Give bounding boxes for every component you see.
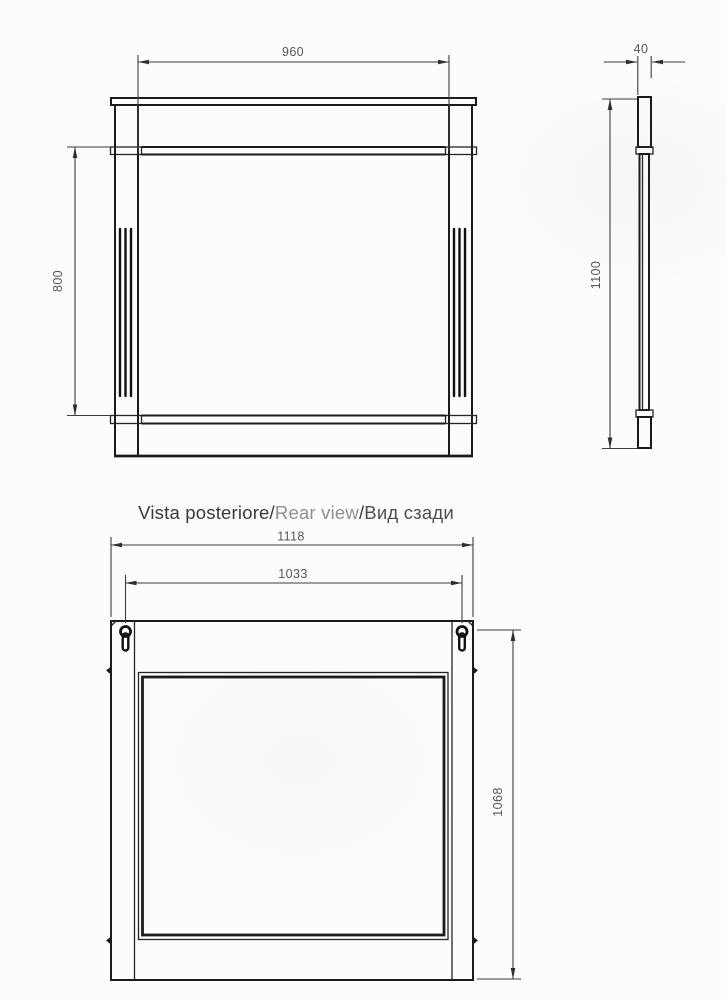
arrowhead xyxy=(511,630,516,641)
front-height-label: 800 xyxy=(51,270,65,292)
side-view xyxy=(636,97,653,448)
rear-panel-outer xyxy=(139,673,449,940)
side-depth-label: 40 xyxy=(634,42,649,56)
front-top-cap xyxy=(111,98,476,105)
arrowhead xyxy=(73,405,78,416)
rear-hanger-spacing-dimension: 1033 xyxy=(126,567,463,623)
title-russian: Вид сзади xyxy=(364,502,454,523)
mirror-technical-drawing: 960 800 40 1100 Vista posteri xyxy=(0,0,727,1000)
rear-overall-width-label: 1118 xyxy=(277,530,305,544)
keyhole-mount-icon-left xyxy=(121,627,131,651)
side-notch xyxy=(106,667,111,675)
rear-hanging-height-label: 1068 xyxy=(491,787,505,816)
arrowhead xyxy=(462,543,473,548)
arrowhead xyxy=(608,99,613,110)
rear-view-title: Vista posteriore/Rear view/Вид сзади xyxy=(138,502,454,523)
title-english: Rear view xyxy=(275,502,359,523)
arrowhead xyxy=(652,60,663,65)
front-height-dimension: 800 xyxy=(51,147,111,416)
arrowhead xyxy=(626,60,637,65)
side-notch xyxy=(473,667,478,675)
side-depth-dimension: 40 xyxy=(604,42,685,95)
arrowhead xyxy=(138,60,149,65)
side-height-dimension: 1100 xyxy=(589,99,637,449)
front-view xyxy=(111,98,477,456)
arrowhead xyxy=(126,581,137,586)
front-width-label: 960 xyxy=(282,45,304,59)
rear-hanging-height-dimension: 1068 xyxy=(477,630,521,979)
keyhole-mount-icon-right xyxy=(457,627,467,651)
side-notch xyxy=(473,937,478,945)
arrowhead xyxy=(73,147,78,158)
side-top-cap xyxy=(638,97,651,147)
side-height-label: 1100 xyxy=(589,261,603,289)
rear-view xyxy=(106,621,478,980)
rear-panel-inner xyxy=(143,677,445,935)
side-body xyxy=(640,154,650,410)
rear-outer-frame xyxy=(111,621,473,980)
side-notch xyxy=(106,937,111,945)
side-bottom-section xyxy=(638,417,651,448)
arrowhead xyxy=(111,543,122,548)
rear-hanger-spacing-label: 1033 xyxy=(278,567,307,581)
title-italian: Vista posteriore xyxy=(138,502,269,523)
arrowhead xyxy=(451,581,462,586)
arrowhead xyxy=(511,968,516,979)
side-upper-collar xyxy=(636,147,653,154)
side-lower-collar xyxy=(636,410,653,417)
arrowhead xyxy=(608,438,613,449)
arrowhead xyxy=(438,60,449,65)
